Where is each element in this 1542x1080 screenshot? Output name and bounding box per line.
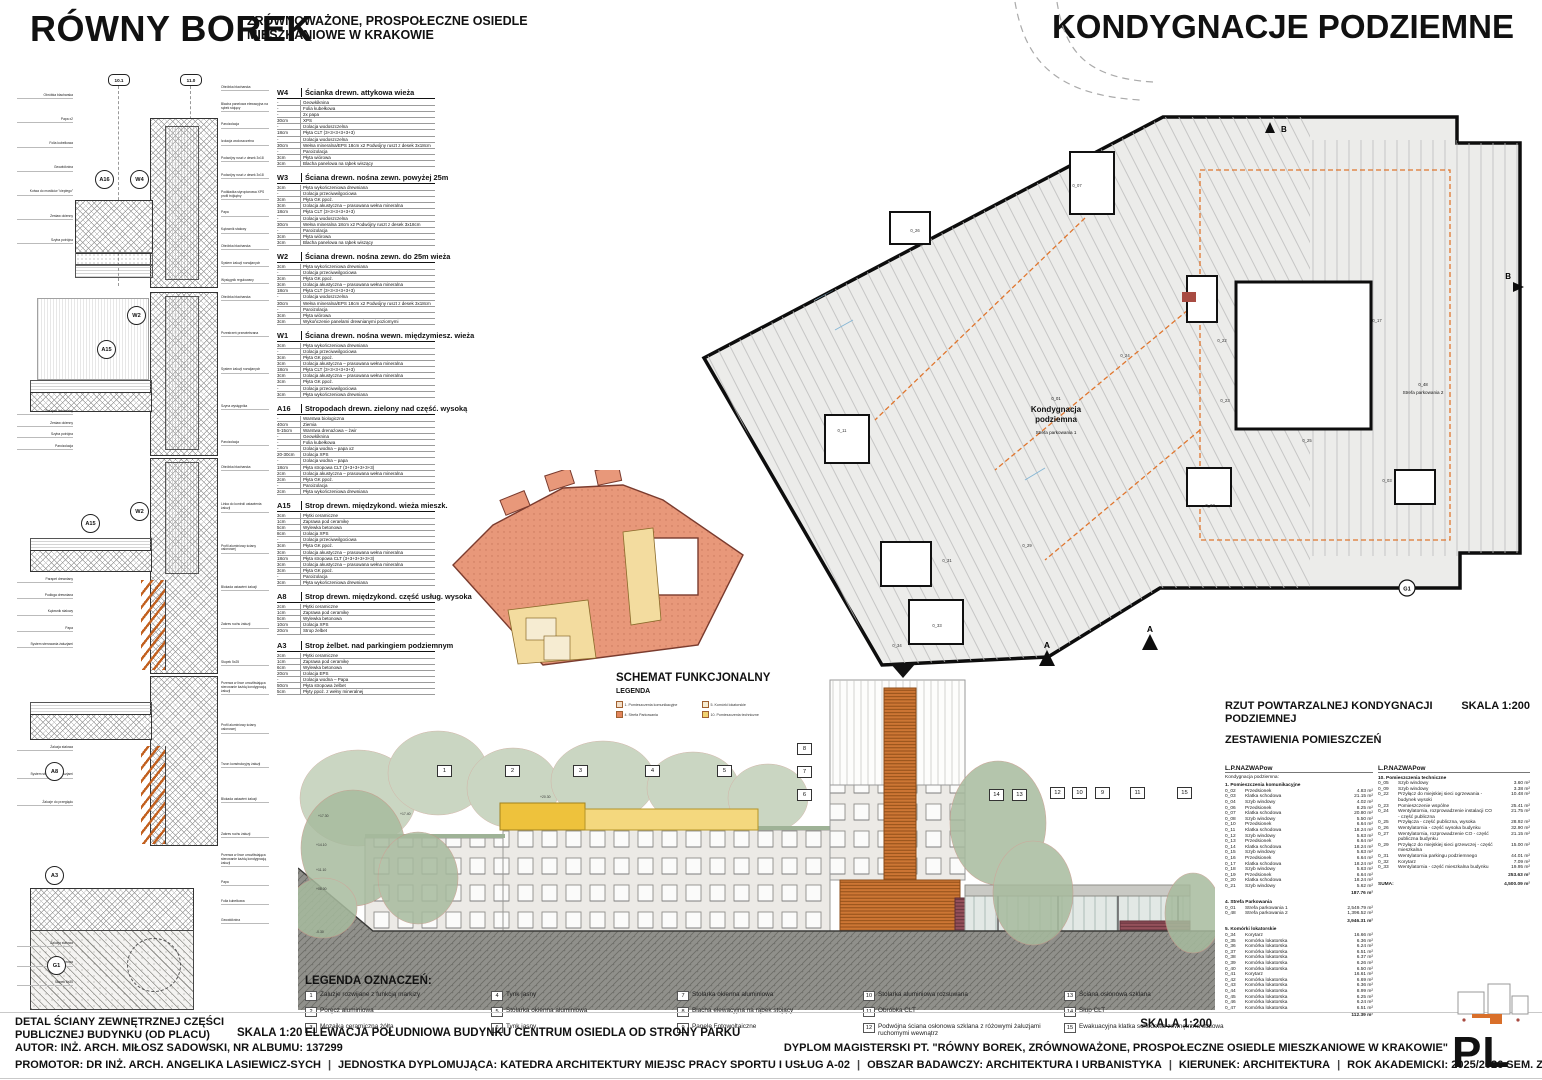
- room-row: 0_33Wentylatornia - część mieszkalna bud…: [1378, 865, 1530, 871]
- building-main-body: [503, 830, 830, 935]
- diploma-line: DYPLOM MAGISTERSKI PT. "RÓWNY BOREK, ZRÓ…: [760, 1042, 1448, 1054]
- detail-bubble-w2: W2: [130, 502, 149, 521]
- assembly-a15: A15Strop drewn. międzykond. wieża mieszk…: [277, 501, 435, 586]
- detail-panel-louver-wall: Parapet drewnianyPodłoga drewnianaKątown…: [15, 458, 271, 674]
- level-annotation: +11.10: [316, 868, 326, 872]
- footer-separator: |: [1169, 1059, 1172, 1071]
- project-mini-logo: [1452, 978, 1532, 1030]
- plan-room-code: 0_33: [932, 623, 942, 628]
- slab-layer: [75, 264, 153, 278]
- insulation-hatch: [165, 462, 199, 574]
- callout-label: Paroizolacja: [17, 445, 73, 450]
- plan-heading-line2: PODZIEMNEJ: [1225, 713, 1440, 726]
- footer-field: KIERUNEK: ARCHITEKTURA: [1179, 1059, 1330, 1071]
- detail-bubble-a8: A8: [45, 762, 64, 781]
- underground-parking-plan: 0_01 Kondygnacja podziemna Strefa parkow…: [695, 0, 1540, 695]
- callout-label: Paroizolacja: [221, 441, 269, 446]
- floor-slab-hatch: [30, 550, 152, 572]
- callout-label: Papa: [221, 211, 269, 216]
- callout-label: Przestrzeń przewietrzana: [221, 332, 269, 337]
- plan-room-code: 0_03: [1382, 478, 1392, 483]
- elevation-marker-7: 7: [797, 766, 812, 778]
- elevation-marker-6: 6: [797, 789, 812, 801]
- promoter-line: PROMOTOR: DR INŻ. ARCH. ANGELIKA LASIEWI…: [15, 1059, 1448, 1071]
- project-subtitle-line2: MIESZKANIOWE W KRAKOWIE: [247, 28, 528, 42]
- callouts-left: Parapet drewnianyZestaw okiennySzyba pot…: [17, 410, 73, 450]
- callout-label: Papa: [17, 627, 73, 632]
- callout-label: Parapet drewniany: [17, 578, 73, 583]
- detail-bubble-a15: A15: [97, 340, 116, 359]
- callout-label: Obróbka blacharska: [221, 245, 269, 250]
- level-annotation: -0.30: [316, 930, 324, 934]
- legend-item-10: 10Stolarka aluminiowa rozsuwana: [863, 991, 1058, 1006]
- elevation-marker-13: 13: [1012, 789, 1027, 801]
- yellow-roof-volume: [500, 803, 585, 830]
- callouts-left: Żaluzja stalowaSystem sterowania żaluzja…: [17, 746, 73, 806]
- callout-label: Trzon konstrukcyjny żaluzji: [221, 763, 269, 768]
- detail-bubble-a15: A15: [81, 514, 100, 533]
- assembly-layer-row: 3cmBlacha panelowa na rąbek wiszący: [277, 240, 435, 246]
- grid-bubble: 10.1: [108, 74, 130, 86]
- ramp-dashed-line: [1057, 2, 1153, 82]
- callout-label: Żaluzja stalowa: [17, 942, 73, 947]
- detail-panel-foundation: Żaluzja stalowaPodłoga ażurowaSłupek 5x2…: [15, 846, 271, 1012]
- callout-label: System żaluzji rozwijanych: [221, 368, 269, 373]
- callout-label: Zestaw okienny: [17, 215, 73, 220]
- assembly-w1: W1Ściana drewn. nośna wewn. międzymiesz.…: [277, 331, 435, 398]
- callouts-right: Obróbka blacharskaBlacha panelowa elewac…: [221, 86, 269, 284]
- assembly-a16: A16Stropodach drewn. zielony nad część. …: [277, 404, 435, 495]
- elevation-caption: ELEWACJA POŁUDNIOWA BUDYNKU CENTRUM OSIE…: [305, 1027, 740, 1039]
- elevation-marker-11: 11: [1130, 787, 1145, 799]
- legend-title: LEGENDA OZNACZEŃ:: [305, 975, 432, 987]
- elevation-marker-14: 14: [989, 789, 1004, 801]
- project-subtitle-line1: ZRÓWNOWAŻONE, PROSPOŁECZNE OSIEDLE: [247, 14, 528, 28]
- stair-pod: [595, 470, 622, 485]
- detail-caption-line1: DETAL ŚCIANY ZEWNĘTRZNEJ CZĘŚCI: [15, 1016, 224, 1029]
- legend-item-2: 2Poręcz aluminiowa: [305, 1007, 485, 1022]
- plan-room-code: 0_34: [892, 643, 902, 648]
- elevation-marker-4: 4: [645, 765, 660, 777]
- callouts-left: Parapet drewnianyPodłoga drewnianaKątown…: [17, 578, 73, 648]
- green-roof-hatch: [75, 200, 153, 254]
- assembly-w2: W2Ściana drewn. nośna zewn. do 25m wieża…: [277, 252, 435, 325]
- callout-label: Izolacja wodoszczelna: [221, 140, 269, 145]
- plan-scale: SKALA 1:200: [1455, 700, 1530, 712]
- callout-label: System sterowania żaluzjami: [17, 643, 73, 648]
- legend-item-4: 4Tynk jasny: [491, 991, 671, 1006]
- wall-assembly-tables: W4Ścianka drewn. attykowa wieża-Geowłókn…: [277, 88, 435, 701]
- grid-bubble: 11.0: [180, 74, 202, 86]
- detail-caption: DETAL ŚCIANY ZEWNĘTRZNEJ CZĘŚCI PUBLICZN…: [15, 1016, 224, 1041]
- level-annotation: +14.10: [316, 843, 326, 847]
- room-row: 0_27Wentylatornia, rozprowadzenie CO - c…: [1378, 832, 1530, 843]
- callout-label: Blokada ustawień żaluzji: [221, 586, 269, 591]
- callout-label: Podwójny ruszt z desek 3x18: [221, 157, 269, 162]
- assembly-w4: W4Ścianka drewn. attykowa wieża-Geowłókn…: [277, 88, 435, 167]
- detail-panel-window-sill: Parapet drewnianyZestaw okiennySzyba pot…: [15, 292, 271, 455]
- floor-slab-hatch: [30, 714, 152, 740]
- detail-circle: [127, 938, 181, 992]
- callout-label: System żaluzji rozwijanych: [221, 262, 269, 267]
- south-elevation: [298, 663, 1215, 1015]
- callout-label: Papa x2: [17, 118, 73, 123]
- section-arrow: [890, 663, 916, 678]
- callouts-right: Obróbka blacharskaLinka do kontroli usta…: [221, 466, 269, 666]
- callouts-right: Przerwa w lince umożliwiająca sterowanie…: [221, 682, 269, 838]
- svg-text:G1: G1: [1403, 587, 1410, 593]
- callout-label: Żaluzje do przeglądu: [17, 801, 73, 806]
- assembly-layer-row: 3cmPłyta wykończeniowa drewniana: [277, 580, 435, 586]
- callout-label: Paroizolacja: [221, 123, 269, 128]
- callout-label: Profil aluminiowy ściany osłonowej: [221, 724, 269, 733]
- plan-room-code: 0_31: [942, 558, 952, 563]
- detail-bubble-a3: A3: [45, 866, 64, 885]
- tower-louver-strip: [884, 688, 916, 880]
- callout-label: Profil aluminiowy ściany osłonowej: [221, 545, 269, 554]
- ramp-dashed-line: [1015, 2, 1140, 100]
- legend-item-7: 7Stolarka okienna aluminiowa: [677, 991, 857, 1006]
- callouts-right: Przerwa w lince umożliwiająca sterowanie…: [221, 854, 269, 924]
- elevation-marker-2: 2: [505, 765, 520, 777]
- elevation-marker-3: 3: [573, 765, 588, 777]
- red-room: [1182, 292, 1196, 302]
- plan-room-code: 0_23: [1220, 398, 1230, 403]
- callouts-right: Obróbka blacharskaPrzestrzeń przewietrza…: [221, 296, 269, 446]
- room-row: 0_22Przyłącz do miejskiej sieci ogrzewan…: [1378, 792, 1530, 803]
- callout-label: Folia kubełkowa: [221, 900, 269, 905]
- callout-label: Podwójny ruszt z desek 3x18: [221, 174, 269, 179]
- plan-room-code: 0_22: [1217, 338, 1227, 343]
- schedule-total: SUMA:4,500.09 m²: [1378, 882, 1530, 888]
- detail-bubble-w2: W2: [127, 306, 146, 325]
- plan-room-code: 0_11: [837, 428, 847, 433]
- svg-text:A: A: [1147, 624, 1153, 634]
- orange-louvers: [141, 746, 166, 844]
- legend-item-5: 5Stolarka okienna aluminiowa: [491, 1007, 671, 1022]
- callout-label: Kątownik stalowy: [221, 228, 269, 233]
- callout-label: Obróbka blacharska: [221, 86, 269, 91]
- cream-rooms: [544, 636, 570, 660]
- callout-label: Blokada ustawień żaluzji: [221, 798, 269, 803]
- assembly-w3: W3Ściana drewn. nośna zewn. powyżej 25m3…: [277, 173, 435, 246]
- callout-label: Szyba potrójna: [17, 239, 73, 244]
- footer-field: JEDNOSTKA DYPLOMUJĄCA: KATEDRA ARCHITEKT…: [338, 1059, 850, 1071]
- callout-label: Słupek 5x25: [17, 981, 73, 986]
- detail-bubble-a16: A16: [95, 170, 114, 189]
- svg-text:B: B: [1505, 272, 1511, 281]
- footer-field: PROMOTOR: DR INŻ. ARCH. ANGELIKA LASIEWI…: [15, 1059, 321, 1071]
- footer-separator: |: [328, 1059, 331, 1071]
- detail-panel-service-floor: Żaluzja stalowaSystem sterowania żaluzja…: [15, 676, 271, 846]
- callout-label: Geowłóknina: [17, 166, 73, 171]
- slab-hatch: [30, 888, 194, 932]
- plan-room-code: 0_17: [1372, 318, 1382, 323]
- callout-label: Geowłóknina: [221, 919, 269, 924]
- level-annotation: +20.30: [540, 795, 550, 799]
- plan-room-code: 0_25: [1302, 438, 1312, 443]
- callout-label: Zestaw okienny: [17, 422, 73, 427]
- legend-item-8: 8Blacha elewacyjna na rąbek stojący: [677, 1007, 857, 1022]
- footer-field: OBSZAR BADAWCZY: ARCHITEKTURA I URBANIST…: [867, 1059, 1162, 1071]
- callout-label: Słupek 5x25: [221, 661, 269, 666]
- callouts-left: Obróbka blacharskaPapa x2Folia kubełkowa…: [17, 94, 73, 244]
- level-annotation: +17.40: [400, 812, 410, 816]
- elevation-marker-12: 12: [1050, 787, 1065, 799]
- detail-bubble-w4: W4: [130, 170, 149, 189]
- callout-label: Obróbka blacharska: [221, 296, 269, 301]
- elevation-marker-1: 1: [437, 765, 452, 777]
- elevation-marker-15: 15: [1177, 787, 1192, 799]
- level-annotation: +17.30: [318, 814, 328, 818]
- room-table-right: L.P.NAZWAPow10. Pomieszczenia techniczne…: [1378, 766, 1530, 888]
- elevation-marker-9: 9: [1095, 787, 1110, 799]
- divider: [0, 1012, 1542, 1013]
- plan-heading: RZUT POWTARZALNEJ KONDYGNACJI PODZIEMNEJ: [1225, 700, 1440, 726]
- footer-separator: |: [857, 1059, 860, 1071]
- plan-room-code: 0_24: [1120, 353, 1130, 358]
- plan-room-code: 0_01: [1051, 396, 1061, 401]
- room-row: 0_24Wentylatornia, rozprowadzenie instal…: [1378, 809, 1530, 820]
- callout-label: Podkładka styropianowa XPS profil trójką…: [221, 191, 269, 200]
- yellow-roof-volume-2: [585, 809, 758, 830]
- tower-louver-base: [840, 880, 960, 935]
- detail-bubble-g1: G1: [47, 956, 66, 975]
- callout-label: Szyba potrójna: [17, 433, 73, 438]
- plan-heading-line1: RZUT POWTARZALNEJ KONDYGNACJI: [1225, 700, 1440, 713]
- room-row: 0_29Przyłącz do miejskiej sieci grzewcze…: [1378, 843, 1530, 854]
- insulation-hatch: [165, 126, 199, 280]
- callout-label: Papa: [221, 881, 269, 886]
- callout-label: Zakres ruchu żaluzji: [221, 623, 269, 628]
- assembly-layer-row: 3cmWykończenie panelami drewnianymi pozi…: [277, 319, 435, 325]
- callout-label: Folia kubełkowa: [17, 142, 73, 147]
- project-subtitle: ZRÓWNOWAŻONE, PROSPOŁECZNE OSIEDLE MIESZ…: [247, 14, 528, 42]
- elevation-marker-5: 5: [717, 765, 732, 777]
- plan-zone2-label: Strefa parkowania 2: [1403, 390, 1444, 395]
- callout-label: Żaluzja stalowa: [17, 746, 73, 751]
- callout-label: Parapet drewniany: [17, 410, 73, 415]
- legend-item-12: 12Podwójna ściana osłonowa szklana z róż…: [863, 1023, 1058, 1038]
- elevation-marker-8: 8: [797, 743, 812, 755]
- plan-room-code: 0_07: [1072, 183, 1082, 188]
- svg-text:B: B: [1281, 125, 1287, 134]
- plan-zone2-code: 0_48: [1418, 382, 1428, 387]
- plan-label-1: Kondygnacja: [1031, 405, 1082, 414]
- detail-panel-roof-parapet: Obróbka blacharskaPapa x2Folia kubełkowa…: [15, 72, 271, 288]
- assembly-layer-row: 20cmStrop żelbet: [277, 628, 435, 634]
- callout-label: Zakres ruchu żaluzji: [221, 833, 269, 838]
- insulation-hatch: [165, 296, 199, 450]
- bottom-edge: [0, 1078, 1542, 1079]
- plan-label-2: podziemna: [1035, 415, 1077, 424]
- room-row: 0_21Szyb windowy5.62 m²: [1225, 884, 1373, 890]
- orange-louvers: [141, 580, 166, 670]
- assembly-a8: A8Strop drewn. międzykond. część usług. …: [277, 592, 435, 634]
- callout-label: Blacha panelowa elewacyjna na rąbek stoj…: [221, 103, 269, 112]
- courtyard-opening: [1236, 282, 1371, 429]
- callout-label: Szyna wysięgnika: [221, 405, 269, 410]
- assembly-layer-row: 2cmPłyta wykończeniowa drewniana: [277, 489, 435, 495]
- callout-label: Podłoga drewniana: [17, 594, 73, 599]
- assembly-layer-row: 3cmPłyta wykończeniowa drewniana: [277, 392, 435, 398]
- legend-item-1: 1Żaluzje rozwijane z funkcją markizy: [305, 991, 485, 1006]
- elevation-scale: SKALA 1:200: [1100, 1018, 1212, 1030]
- plan-room-code: 0_29: [1022, 543, 1032, 548]
- callout-label: Wysięgnik regulowany: [221, 279, 269, 284]
- callout-label: Kątownik stalowy: [17, 610, 73, 615]
- legend-item-11: 11Obróbka CLT: [863, 1007, 1058, 1022]
- legend-item-13: 13Ściana osłonowa szklana: [1064, 991, 1254, 1006]
- presentation-board: RÓWNY BOREK ZRÓWNOWAŻONE, PROSPOŁECZNE O…: [0, 0, 1542, 1080]
- callout-label: Linka do kontroli ustawienia żaluzji: [221, 503, 269, 512]
- callout-label: Obróbka blacharska: [17, 94, 73, 99]
- plan-room-code: 0_27: [1205, 503, 1215, 508]
- elevation-marker-10: 10: [1072, 787, 1087, 799]
- plan-zone1-label: Strefa parkowania 1: [1036, 430, 1077, 435]
- svg-text:A: A: [1044, 640, 1050, 650]
- callout-label: Obróbka blacharska: [221, 466, 269, 471]
- footer-separator: |: [1337, 1059, 1340, 1071]
- callout-label: Przerwa w lince umożliwiająca sterowanie…: [221, 682, 269, 695]
- room-row: 0_48Strefa parkowania 21,396.52 m²: [1225, 911, 1373, 917]
- schedule-subheading: ZESTAWIENIA POMIESZCZEŃ: [1225, 734, 1381, 746]
- detail-scale: SKALA 1:20: [237, 1027, 302, 1039]
- plan-room-code: 0_26: [910, 228, 920, 233]
- callout-label: Przerwa w lince umożliwiająca sterowanie…: [221, 854, 269, 867]
- sheet-number: PL 8: [1452, 1028, 1542, 1080]
- assembly-layer-row: 3cmBlacha panelowa na rąbek wiszący: [277, 161, 435, 167]
- level-annotation: +08.00: [316, 887, 326, 891]
- callout-label: Kotwa do mostków "ciepłego": [17, 190, 73, 195]
- author-line: AUTOR: INŻ. ARCH. MIŁOSZ SADOWSKI, NR AL…: [15, 1042, 343, 1054]
- room-table-left: L.P.NAZWAPowKondygnacja podziemna:1. Pom…: [1225, 766, 1373, 1021]
- logo-orange-shape: [1472, 1014, 1502, 1024]
- detail-caption-line2: PUBLICZNEJ BUDYNKU (OD PLACU): [15, 1029, 224, 1042]
